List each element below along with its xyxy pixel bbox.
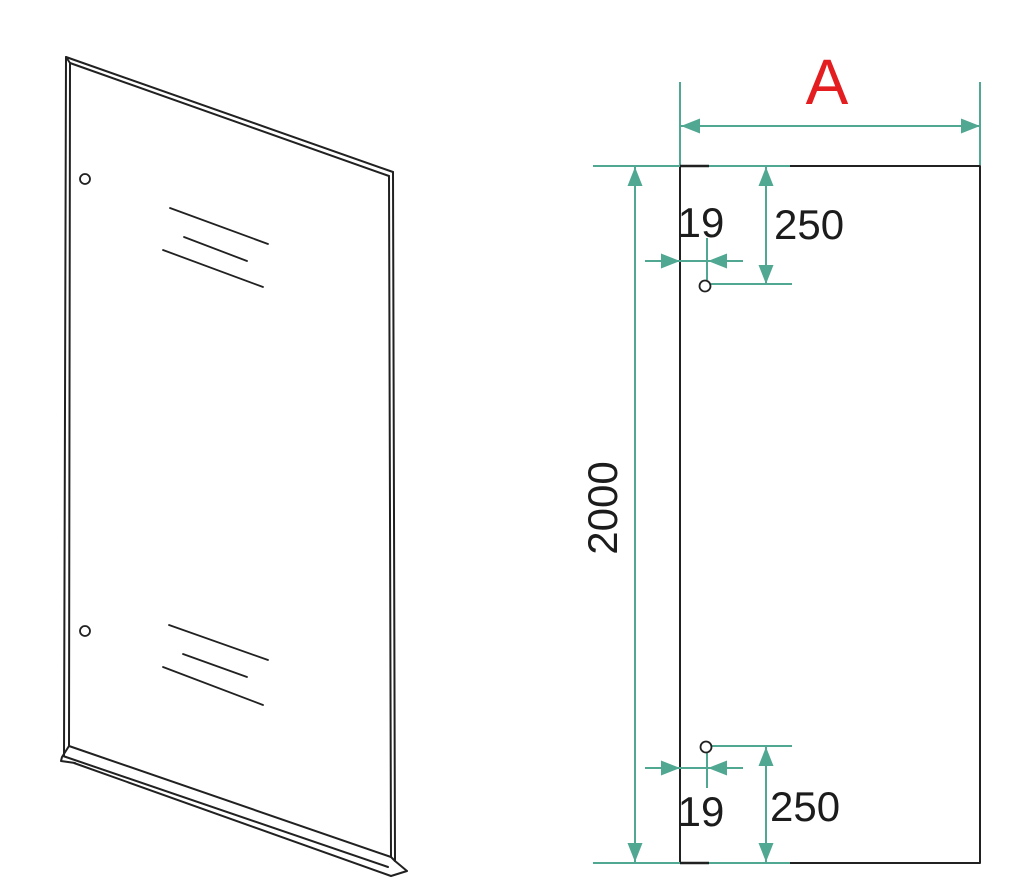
dim-top-hole-x-arrow-left: [661, 254, 680, 269]
dim-bottom-hole-x-arrow-left: [661, 761, 680, 776]
dim-top-hole-x-arrow-right: [708, 254, 727, 269]
dim-width-arrow-right: [961, 119, 980, 134]
mounting-hole-bottom: [701, 742, 712, 753]
dim-height-arrow-top: [628, 167, 643, 186]
dim-bottom-hole-y-arrow-top: [759, 747, 774, 766]
bottom-rail: [61, 746, 407, 876]
mounting-hole-bottom-3d: [80, 626, 90, 636]
dimension-annotations: A 2000 19: [579, 46, 980, 863]
mounting-hole-top: [700, 281, 711, 292]
technical-drawing-page: A 2000 19: [0, 0, 1024, 893]
glass-reflection-lines-bottom: [163, 625, 268, 705]
dim-top-hole-y-arrow-bottom: [759, 265, 774, 284]
panel-outline: [680, 166, 980, 863]
dim-width-label: A: [806, 46, 849, 118]
dim-width-arrow-left: [681, 119, 700, 134]
dim-width: A: [680, 46, 980, 165]
dim-height-arrow-bottom: [628, 843, 643, 862]
dim-bottom-hole-offset-y: 250: [711, 746, 840, 862]
glass-panel-technical-drawing: A 2000 19: [0, 0, 1024, 893]
dim-bottom-hole-x-arrow-right: [708, 761, 727, 776]
dim-bottom-hole-x-value: 19: [678, 788, 725, 835]
panel-isometric-view: [61, 57, 407, 876]
dim-top-hole-offset-y: 250: [711, 167, 844, 284]
dim-top-hole-y-arrow-top: [759, 167, 774, 186]
dim-top-hole-x-value: 19: [678, 199, 725, 246]
glass-right-edge: [389, 172, 395, 861]
glass-left-edge: [64, 57, 70, 756]
dim-height: 2000: [579, 166, 790, 863]
panel-front-view: [680, 166, 980, 863]
glass-top-edge: [66, 57, 393, 176]
dim-top-hole-offset-x: 19: [645, 199, 743, 280]
dim-bottom-hole-y-value: 250: [770, 783, 840, 830]
mounting-hole-top-3d: [80, 174, 90, 184]
dim-height-value: 2000: [579, 461, 626, 554]
dim-bottom-hole-offset-x: 19: [645, 752, 743, 835]
dim-bottom-hole-y-arrow-bottom: [759, 843, 774, 862]
glass-reflection-lines-top: [163, 208, 268, 287]
dim-top-hole-y-value: 250: [774, 201, 844, 248]
